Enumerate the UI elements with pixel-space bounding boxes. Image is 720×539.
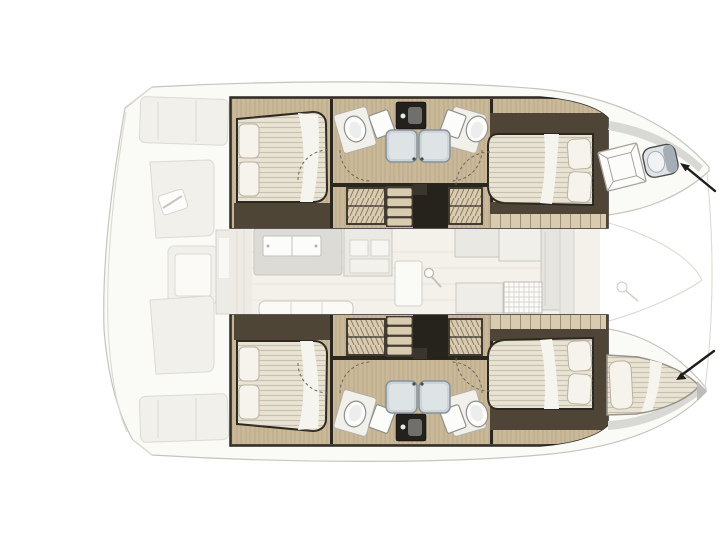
dinette (254, 228, 342, 275)
refrigerator (541, 228, 560, 310)
deck-hatch (598, 143, 646, 191)
starboard-hull (230, 315, 608, 446)
floor-plan-canvas (0, 0, 720, 539)
pillow (609, 360, 633, 409)
salon-door (395, 261, 422, 306)
cockpit-seat (150, 296, 214, 374)
cockpit-bench (139, 393, 229, 442)
port-hull (230, 97, 608, 228)
door-knob (425, 269, 434, 278)
salon-cabinet (344, 228, 392, 276)
forward-door-band (560, 228, 574, 316)
salon (230, 228, 600, 317)
cockpit-bench (139, 96, 229, 145)
bow-toilet (641, 143, 680, 179)
mast-foot (617, 282, 627, 292)
catamaran-floor-plan (0, 0, 720, 539)
stove (504, 282, 542, 313)
